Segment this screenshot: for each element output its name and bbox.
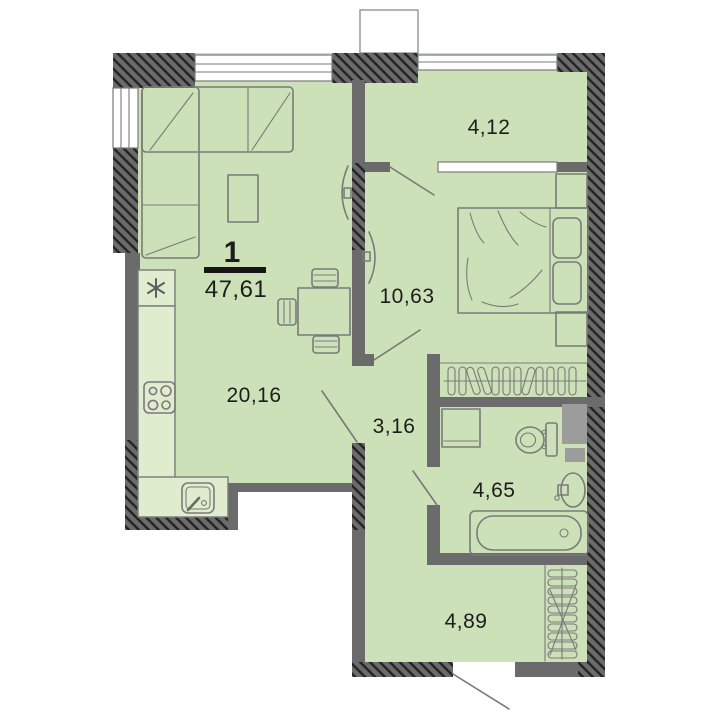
vent-shaft [565,448,585,462]
total-area-divider [204,267,266,273]
wall-bottom-left [352,662,453,677]
hallway-area-label: 4,89 [445,610,488,633]
entrance-door-swing [453,674,509,709]
wall-top-left [113,53,195,88]
wall-balcony-east-seg [557,162,587,172]
total-area-label: 47,61 [205,276,268,303]
rooms-count-label: 1 [224,236,241,269]
living-area-label: 20,16 [226,384,281,407]
vent-shaft [562,404,587,444]
bedroom-area-label: 10,63 [379,285,434,308]
floor-plan-canvas: 4,12 10,63 20,16 3,16 4,65 4,89 1 47,61 [0,0,720,720]
wall-central-bearing [352,163,365,250]
wall-corridor-bearing [352,443,365,530]
entrance-opening [453,662,515,677]
wall-hall-left [352,530,365,677]
adjacent-balcony-outline [360,10,418,53]
wall-kitchen-bottom [125,517,238,530]
living-room-window [195,55,332,81]
wall-step-horizontal [228,483,365,492]
balcony-area-label: 4,12 [468,116,511,139]
kitchen-window [113,88,138,148]
wall-bathroom-west [427,354,440,467]
wall-left-upper [113,148,138,253]
wall-right [587,53,605,677]
corridor-area-label: 3,16 [373,415,416,438]
bedroom-balcony-window [438,162,557,172]
bathroom-area-label: 4,65 [473,479,516,502]
wall-top-middle [332,53,418,83]
wall-balcony-door-stub [365,162,390,172]
wall-bottom-corner [578,662,605,677]
wall-bedroom-door-stub [352,354,374,366]
floor-plan: 4,12 10,63 20,16 3,16 4,65 4,89 1 47,61 [0,0,720,720]
